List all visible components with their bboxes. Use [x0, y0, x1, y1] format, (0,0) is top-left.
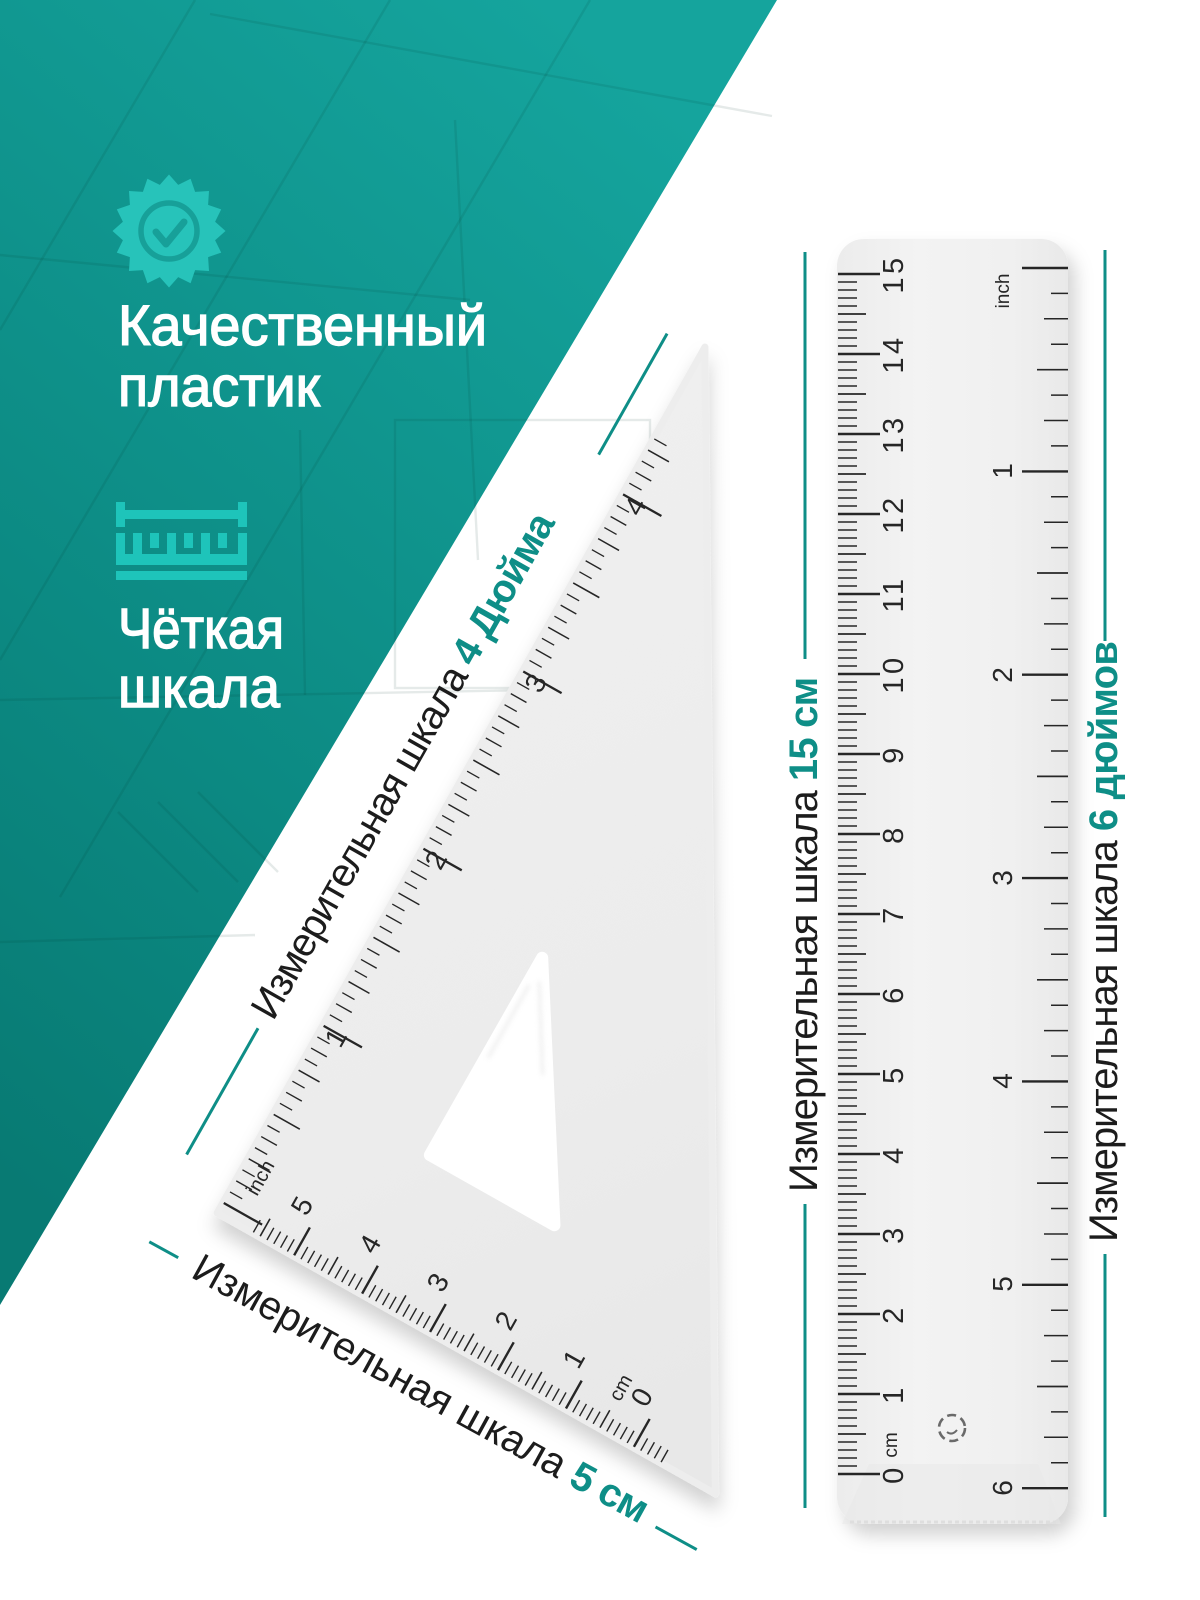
svg-text:пластик: пластик: [118, 355, 321, 419]
svg-text:3: 3: [987, 870, 1018, 886]
svg-text:шкала: шкала: [118, 656, 280, 720]
svg-text:12: 12: [878, 494, 910, 533]
svg-text:3: 3: [878, 1224, 910, 1244]
svg-text:9: 9: [878, 744, 910, 764]
svg-text:14: 14: [878, 334, 910, 373]
svg-text:8: 8: [878, 824, 910, 844]
svg-text:13: 13: [878, 414, 910, 453]
svg-text:2: 2: [878, 1304, 910, 1324]
svg-text:5: 5: [878, 1064, 910, 1084]
svg-text:Измерительная шкала 6 дюймов: Измерительная шкала 6 дюймов: [1082, 642, 1126, 1242]
svg-text:Чёткая: Чёткая: [118, 597, 284, 661]
svg-text:Измерительная шкала 15 см: Измерительная шкала 15 см: [782, 678, 826, 1192]
svg-text:1: 1: [878, 1384, 910, 1404]
svg-text:1: 1: [987, 463, 1018, 479]
svg-text:6: 6: [987, 1480, 1018, 1496]
svg-text:7: 7: [878, 904, 910, 924]
svg-text:2: 2: [987, 667, 1018, 683]
svg-text:0: 0: [878, 1464, 910, 1484]
svg-text:11: 11: [878, 575, 910, 612]
svg-text:inch: inch: [993, 274, 1014, 309]
svg-text:cm: cm: [881, 1432, 902, 1457]
svg-text:4: 4: [987, 1073, 1018, 1089]
svg-text:4: 4: [878, 1144, 910, 1164]
svg-text:Качественный: Качественный: [118, 294, 487, 358]
svg-text:5: 5: [987, 1276, 1018, 1292]
svg-text:15: 15: [878, 254, 910, 293]
svg-text:10: 10: [878, 654, 910, 693]
svg-text:6: 6: [878, 984, 910, 1004]
